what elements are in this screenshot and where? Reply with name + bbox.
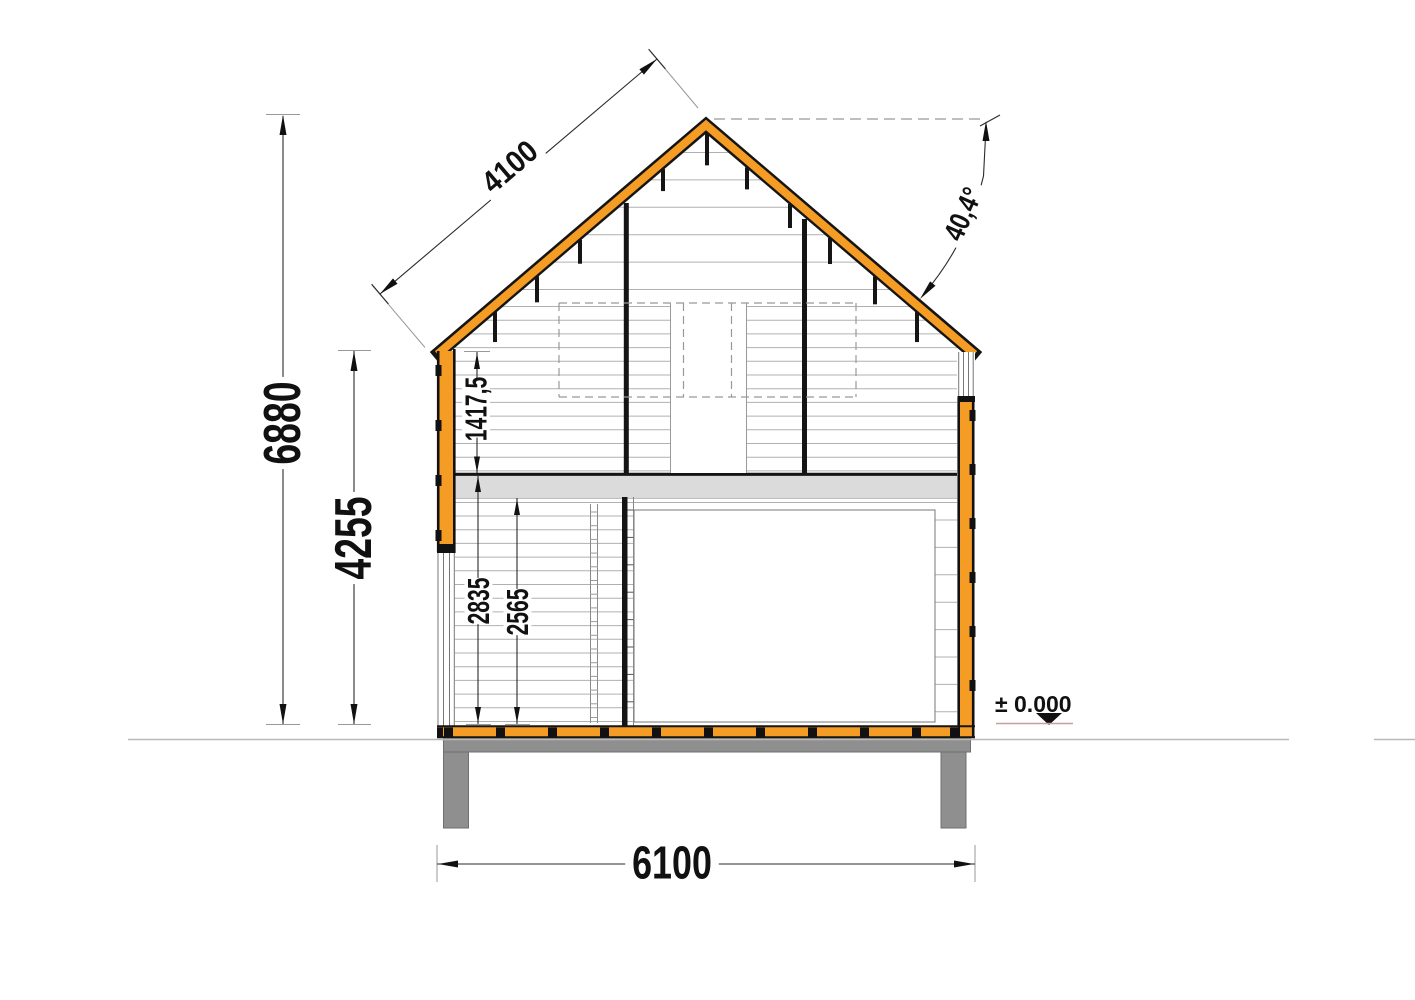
left-wall-window: [437, 553, 455, 726]
foundation-post-left: [444, 752, 469, 828]
floor-joist-mark: [600, 728, 609, 738]
log-end-mark: [970, 626, 976, 637]
dimension-ceiling-height: 2565: [500, 498, 535, 725]
floor-joist-mark: [548, 728, 557, 738]
foundation-post-right: [941, 752, 966, 828]
dimension-roof-slope: 4100: [372, 49, 698, 347]
rafter-tick: [661, 169, 665, 191]
dimension-wall-height: 4255: [324, 351, 383, 725]
rafter-tick: [873, 276, 877, 304]
dimension-total-width-label: 6100: [632, 837, 712, 888]
log-end-mark: [436, 475, 442, 486]
log-end-mark: [970, 518, 976, 529]
log-end-mark: [436, 365, 442, 376]
right-wall-top-cap: [958, 396, 976, 402]
floor-joist-mark: [704, 728, 713, 738]
dimension-ground-floor-height: 2835: [461, 475, 496, 725]
rafter-tick: [788, 204, 792, 228]
log-end-mark: [436, 530, 442, 541]
dimension-loft-height-label: 1417,5: [458, 377, 493, 441]
foundation-beam: [444, 739, 971, 753]
rafter-tick: [828, 238, 832, 264]
log-end-mark: [970, 410, 976, 421]
interior-wall: [622, 497, 628, 726]
dimension-total-width: 6100: [437, 837, 975, 888]
dimension-ground-floor-height-label: 2835: [461, 578, 496, 625]
floor-joist-mark: [444, 728, 453, 738]
log-end-mark: [970, 464, 976, 475]
loft-post-left: [624, 203, 629, 473]
rafter-tick: [578, 240, 582, 264]
floor-joist-mark: [860, 728, 869, 738]
loft-ladder: [590, 504, 598, 723]
loft-vertical-duct: [670, 303, 747, 473]
loft-post-right: [802, 219, 807, 473]
interior-wall-ties: [628, 510, 634, 702]
rafter-tick: [535, 276, 539, 302]
left-wall-bottom-cap: [437, 544, 455, 553]
left-wall: [440, 351, 454, 552]
floor-joist-mark: [808, 728, 817, 738]
floor-joist-mark: [950, 728, 958, 738]
floor-band: [437, 726, 958, 738]
floor-joist-mark: [652, 728, 661, 738]
log-end-mark: [970, 680, 976, 691]
rafter-tick: [493, 312, 497, 342]
rafter-tick: [705, 133, 709, 165]
log-end-mark: [970, 572, 976, 583]
dimension-total-height: 6880: [253, 115, 312, 725]
house-cross-section-drawing: 6880 4255 1417,5 2835: [0, 0, 1415, 1000]
floor-joist-mark: [756, 728, 765, 738]
rafter-tick: [745, 167, 749, 189]
dimension-loft-height: 1417,5: [458, 352, 493, 474]
ground-floor-opening: [634, 510, 935, 722]
floor-joist-mark: [496, 728, 505, 738]
floor-joist-mark: [437, 728, 443, 738]
log-end-mark: [436, 420, 442, 431]
dimension-ceiling-height-label: 2565: [500, 589, 535, 636]
floor-joist-mark: [912, 728, 921, 738]
floor-slab: [455, 476, 957, 498]
right-wall-window: [958, 352, 976, 396]
drawing-canvas: 6880 4255 1417,5 2835: [0, 0, 1415, 1000]
dimension-total-height-label: 6880: [253, 381, 312, 464]
rafter-tick: [915, 312, 919, 342]
dimension-wall-height-label: 4255: [324, 496, 383, 579]
level-marker: ± 0.000: [995, 691, 1073, 725]
